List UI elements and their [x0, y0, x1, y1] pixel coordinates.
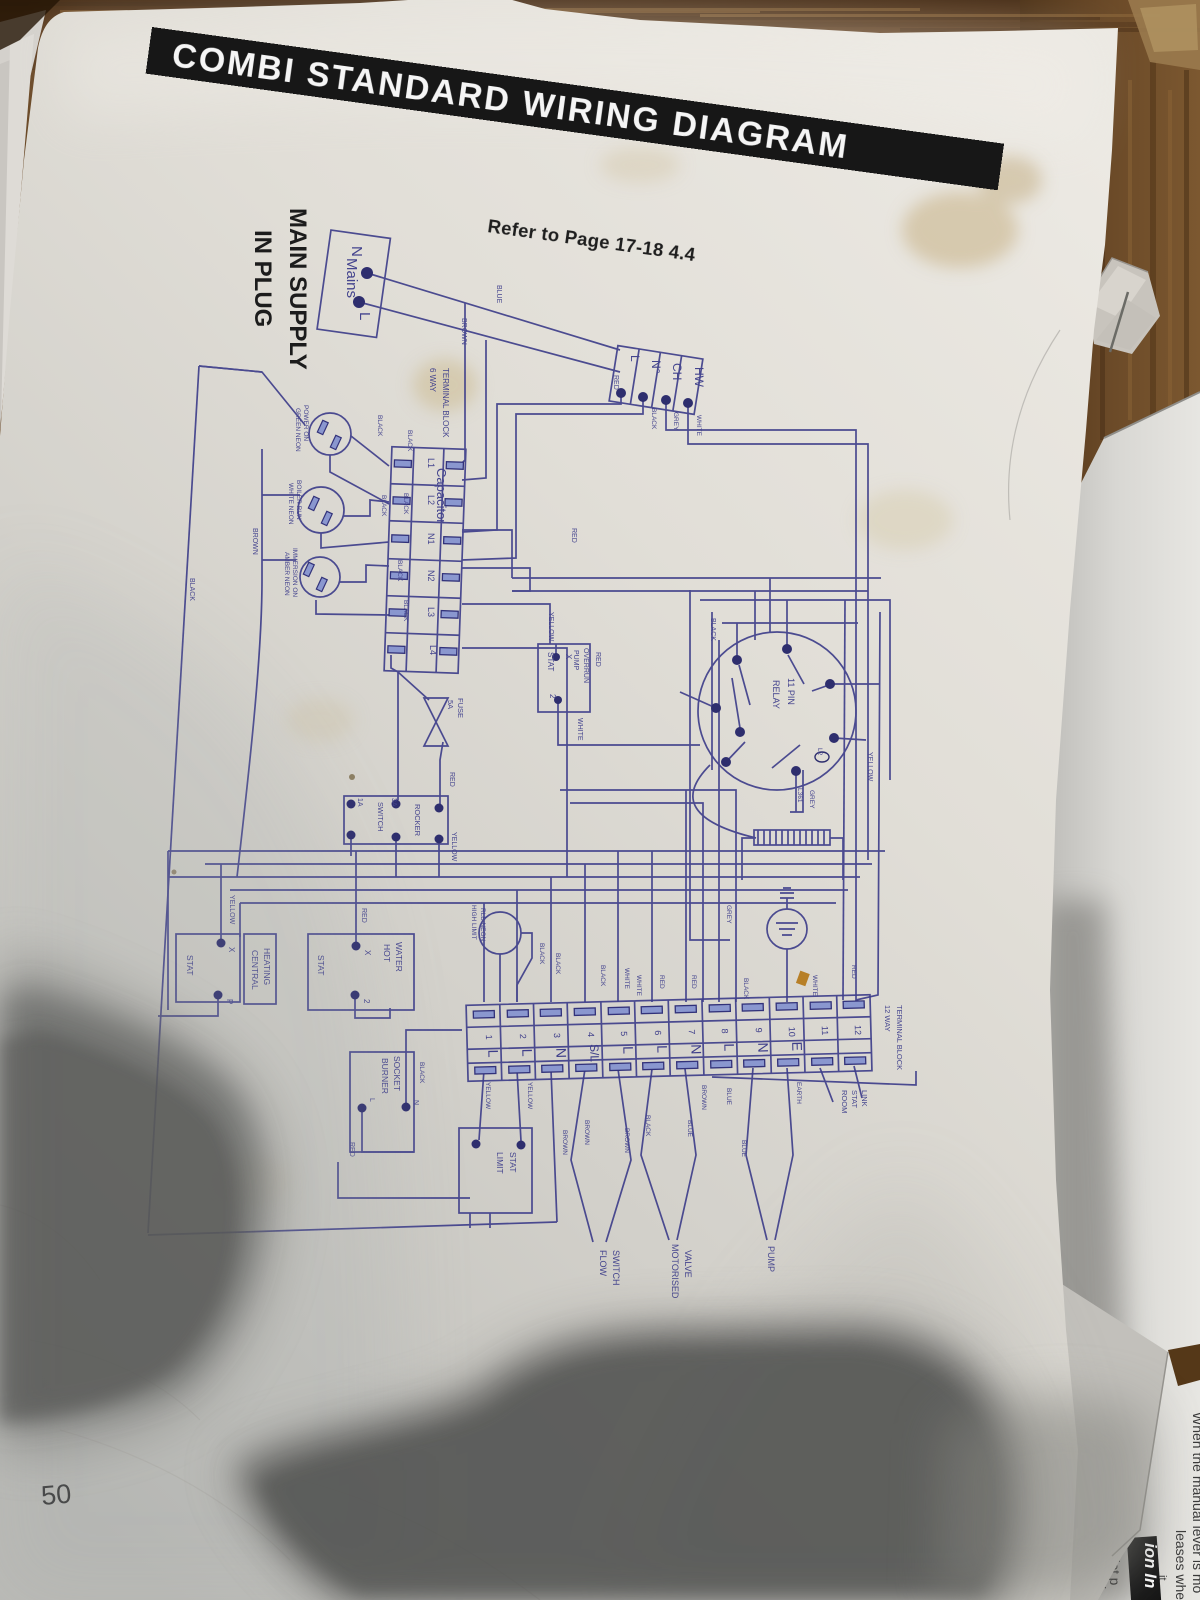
svg-text:When the manual lever is mo: When the manual lever is mo: [1190, 1412, 1200, 1594]
svg-text:L: L: [628, 355, 642, 362]
svg-text:LINK: LINK: [860, 1090, 869, 1107]
svg-text:11 PIN: 11 PIN: [786, 678, 796, 705]
svg-text:10: 10: [787, 1027, 797, 1037]
svg-text:BLACK: BLACK: [396, 560, 403, 582]
svg-text:4: 4: [586, 1032, 596, 1037]
svg-text:3A: 3A: [390, 798, 397, 807]
svg-text:AMBER NEON: AMBER NEON: [283, 552, 290, 596]
svg-text:STAT: STAT: [850, 1090, 859, 1108]
svg-text:L2: L2: [426, 495, 436, 505]
svg-text:L361: L361: [796, 788, 803, 803]
svg-text:8: 8: [720, 1028, 730, 1033]
svg-text:BLACK: BLACK: [418, 1062, 425, 1084]
svg-text:S/L: S/L: [587, 1044, 601, 1063]
svg-text:ROCKER: ROCKER: [413, 804, 422, 837]
svg-text:YELLOW: YELLOW: [450, 832, 457, 862]
svg-text:RED: RED: [570, 528, 577, 543]
svg-text:BROWN: BROWN: [460, 318, 467, 345]
svg-text:BLACK: BLACK: [376, 415, 383, 437]
svg-text:L: L: [654, 1045, 670, 1053]
svg-text:WHITE: WHITE: [576, 718, 583, 741]
svg-text:GREY: GREY: [808, 790, 815, 809]
svg-text:BROWN: BROWN: [251, 528, 258, 555]
svg-text:IMMERSION ON: IMMERSION ON: [291, 548, 298, 597]
svg-text:POWER ON: POWER ON: [302, 405, 309, 441]
svg-text:5: 5: [619, 1031, 629, 1036]
svg-text:CH: CH: [670, 363, 684, 380]
svg-text:FUSE: FUSE: [456, 698, 465, 718]
svg-text:12 WAY: 12 WAY: [883, 1005, 892, 1032]
svg-text:YELLOW: YELLOW: [526, 1082, 533, 1110]
svg-text:SWITCH: SWITCH: [611, 1250, 621, 1286]
svg-text:BLACK: BLACK: [402, 600, 409, 622]
svg-text:BLUE: BLUE: [686, 1120, 693, 1138]
svg-text:E: E: [789, 1041, 805, 1051]
svg-text:BROWN: BROWN: [561, 1130, 568, 1155]
svg-text:N: N: [688, 1044, 704, 1055]
svg-text:1A: 1A: [356, 798, 363, 807]
svg-text:BLACK: BLACK: [402, 493, 409, 515]
svg-text:5A: 5A: [446, 700, 455, 709]
svg-text:HW: HW: [692, 367, 706, 388]
svg-text:BROWN: BROWN: [583, 1120, 590, 1145]
svg-text:BLUE: BLUE: [495, 285, 502, 304]
svg-text:RED: RED: [448, 772, 455, 787]
svg-text:RED: RED: [690, 975, 697, 989]
svg-text:HIGH LIMIT: HIGH LIMIT: [470, 905, 477, 940]
svg-text:MOTORISED: MOTORISED: [670, 1244, 680, 1299]
svg-text:TERMINAL BLOCK: TERMINAL BLOCK: [441, 368, 450, 438]
svg-text:9: 9: [754, 1028, 764, 1033]
svg-text:RED: RED: [594, 652, 601, 667]
svg-text:BLUE: BLUE: [740, 1140, 747, 1158]
svg-text:EARTH: EARTH: [795, 1082, 802, 1104]
svg-text:L: L: [356, 312, 373, 320]
svg-text:LIMIT: LIMIT: [495, 1152, 505, 1174]
svg-text:3: 3: [552, 1033, 562, 1038]
svg-text:STAT: STAT: [508, 1152, 518, 1172]
svg-text:PUMP: PUMP: [572, 650, 579, 671]
svg-text:YELLOW: YELLOW: [484, 1082, 491, 1110]
svg-text:WATER: WATER: [394, 942, 404, 972]
svg-text:GREEN NEON: GREEN NEON: [294, 408, 301, 452]
svg-text:6 WAY: 6 WAY: [428, 368, 437, 393]
svg-text:1: 1: [484, 1035, 494, 1040]
svg-text:WHITE: WHITE: [811, 975, 818, 997]
svg-text:WHITE: WHITE: [635, 975, 642, 997]
svg-text:BOILER RUN: BOILER RUN: [295, 480, 302, 520]
svg-text:6: 6: [653, 1030, 663, 1035]
svg-text:BLACK: BLACK: [554, 953, 561, 975]
svg-text:RED: RED: [360, 908, 367, 923]
svg-text:YELLOW: YELLOW: [866, 752, 873, 782]
svg-text:RELAY: RELAY: [771, 680, 781, 709]
svg-text:L1: L1: [426, 458, 436, 468]
svg-text:YELLOW: YELLOW: [547, 612, 554, 642]
svg-text:L3: L3: [426, 607, 436, 617]
svg-text:HOT: HOT: [382, 944, 392, 962]
svg-text:BLACK: BLACK: [538, 943, 545, 965]
svg-text:N2: N2: [426, 570, 436, 582]
svg-text:BLACK: BLACK: [380, 495, 387, 517]
svg-text:SWITCH: SWITCH: [376, 802, 385, 832]
svg-text:2: 2: [548, 694, 557, 699]
svg-text:GREY: GREY: [672, 412, 679, 431]
svg-text:BLACK: BLACK: [599, 965, 606, 987]
svg-text:MAIN SUPPLY: MAIN SUPPLY: [284, 208, 311, 370]
svg-text:STAT: STAT: [546, 652, 555, 671]
svg-text:L4: L4: [428, 645, 438, 655]
svg-text:RED: RED: [612, 375, 619, 390]
svg-text:BLACK: BLACK: [709, 618, 716, 641]
svg-text:BROWN: BROWN: [700, 1085, 707, 1110]
svg-text:WHITE: WHITE: [623, 968, 630, 990]
svg-text:RED: RED: [850, 965, 857, 979]
svg-text:N°: N°: [649, 360, 663, 374]
svg-text:VALVE: VALVE: [683, 1250, 693, 1278]
svg-text:N: N: [348, 246, 365, 257]
svg-text:L: L: [519, 1049, 535, 1057]
svg-text:TERMINAL BLOCK: TERMINAL BLOCK: [895, 1005, 904, 1070]
svg-text:RED: RED: [658, 975, 665, 989]
svg-text:BLACK: BLACK: [742, 978, 749, 1000]
svg-text:BROWN: BROWN: [623, 1128, 630, 1153]
svg-text:BLACK: BLACK: [644, 1115, 651, 1137]
svg-text:X: X: [564, 654, 573, 660]
svg-text:GREY: GREY: [725, 905, 732, 924]
svg-text:BLACK: BLACK: [650, 408, 657, 430]
svg-text:IN PLUG: IN PLUG: [249, 230, 276, 327]
svg-text:WHITE NEON: WHITE NEON: [287, 483, 294, 525]
svg-text:BLUE: BLUE: [725, 1088, 732, 1106]
svg-text:FLOW: FLOW: [598, 1250, 608, 1277]
svg-text:N: N: [755, 1042, 771, 1053]
svg-text:L: L: [721, 1043, 737, 1051]
svg-text:SOCKET: SOCKET: [392, 1056, 402, 1091]
svg-text:WHITE: WHITE: [695, 415, 702, 437]
svg-text:L: L: [485, 1049, 501, 1057]
svg-text:N1: N1: [426, 533, 436, 545]
svg-text:BLACK: BLACK: [188, 578, 195, 601]
svg-text:Mains: Mains: [343, 258, 360, 298]
svg-text:N: N: [553, 1048, 569, 1059]
svg-text:PUMP: PUMP: [766, 1246, 776, 1272]
svg-text:RLB NEON: RLB NEON: [479, 908, 486, 942]
svg-text:L: L: [620, 1046, 636, 1054]
svg-text:OVERRUN: OVERRUN: [582, 648, 589, 683]
svg-text:2: 2: [518, 1034, 528, 1039]
svg-text:12: 12: [853, 1025, 863, 1035]
svg-text:N: N: [412, 1100, 419, 1105]
svg-text:11: 11: [820, 1026, 830, 1036]
svg-text:leases whe…: leases whe…: [1173, 1530, 1189, 1600]
svg-text:ROOM: ROOM: [840, 1090, 849, 1113]
svg-text:L2: L2: [816, 748, 823, 756]
svg-text:7: 7: [687, 1029, 697, 1034]
svg-text:BLACK: BLACK: [406, 430, 413, 452]
